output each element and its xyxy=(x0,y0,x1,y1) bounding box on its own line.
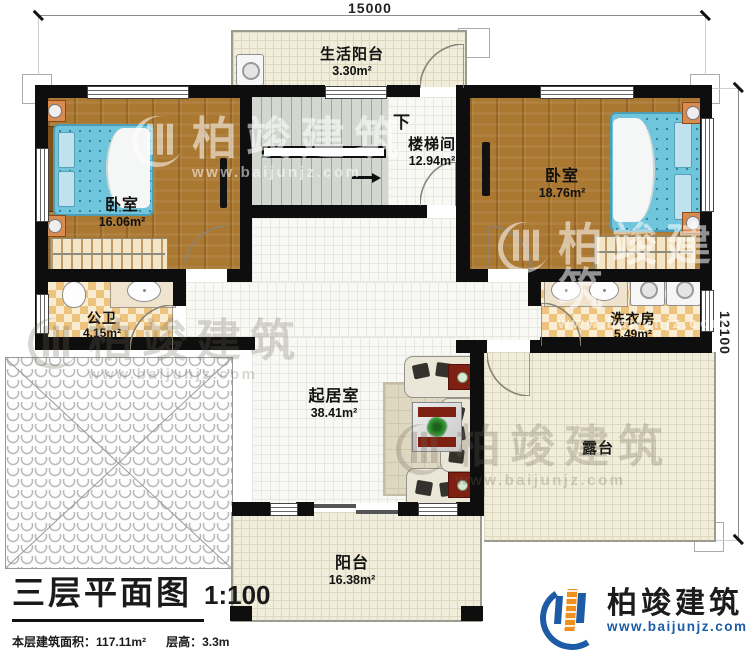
window xyxy=(540,86,634,99)
room-label-stairwell: 楼梯间 12.94m² xyxy=(408,137,456,168)
wall xyxy=(387,85,420,97)
window xyxy=(36,294,49,334)
wall xyxy=(528,269,541,306)
tv xyxy=(220,158,227,208)
hallway-floor xyxy=(252,218,456,284)
balcony-post xyxy=(461,606,483,621)
wall xyxy=(232,502,270,516)
plan-scale: 1:100 xyxy=(204,580,271,610)
company-logo-text: 柏竣建筑 www.baijunjz.com xyxy=(607,588,748,635)
company-logo-icon xyxy=(538,578,602,644)
floor-height-label: 层高： xyxy=(166,635,202,649)
window xyxy=(325,86,387,99)
room-label-public-bath: 公卫 4.15m² xyxy=(83,311,121,340)
room-label-life-balcony: 生活阳台 3.30m² xyxy=(320,47,384,78)
wall xyxy=(240,205,427,218)
room-label-bedroom-left: 卧室 16.06m² xyxy=(99,197,146,229)
company-name: 柏竣建筑 xyxy=(607,588,748,620)
wall xyxy=(173,269,186,306)
floor-plan-canvas: 15000 12100 xyxy=(0,0,750,658)
plant xyxy=(425,415,449,439)
door-laundry xyxy=(541,303,581,346)
window xyxy=(701,290,714,332)
floor-area-value: 117.11m² xyxy=(96,635,146,649)
wall xyxy=(35,269,185,282)
door-bedroom-left xyxy=(185,226,228,269)
parapet xyxy=(484,540,716,542)
window xyxy=(701,118,714,212)
sliding-door xyxy=(314,504,356,508)
room-label-bedroom-right: 卧室 18.76m² xyxy=(539,168,586,200)
company-website: www.baijunjz.com xyxy=(607,619,748,634)
wall xyxy=(456,269,488,282)
plan-stats: 本层建筑面积：117.11m²层高：3.3m xyxy=(12,633,271,650)
dimension-top-value: 15000 xyxy=(348,0,392,16)
wall xyxy=(470,340,484,510)
wall xyxy=(240,85,325,97)
door-stairwell xyxy=(420,162,456,206)
wall xyxy=(530,269,712,282)
wardrobe xyxy=(50,238,168,270)
window xyxy=(36,148,49,222)
room-label-laundry: 洗衣房 5.49m² xyxy=(611,312,656,341)
window xyxy=(418,503,458,516)
water-heater xyxy=(236,54,264,86)
corridor-floor xyxy=(186,282,541,340)
lower-roof xyxy=(5,357,233,569)
parapet xyxy=(231,30,467,32)
room-label-living: 起居室 38.41m² xyxy=(308,388,359,420)
plan-title: 三层平面图 xyxy=(12,574,192,611)
roof-ridge-line xyxy=(6,357,233,568)
window xyxy=(87,86,189,99)
floor-height-value: 3.3m xyxy=(202,635,229,649)
sliding-door xyxy=(356,510,398,514)
wall xyxy=(456,85,470,282)
coffee-table xyxy=(412,402,462,452)
parapet xyxy=(465,30,467,87)
wall xyxy=(398,502,418,516)
wardrobe xyxy=(594,236,696,270)
parapet xyxy=(231,30,233,87)
tv xyxy=(482,142,490,196)
door-terrace xyxy=(487,353,530,396)
window xyxy=(270,503,298,516)
wall xyxy=(240,85,252,282)
stair-down-arrow xyxy=(352,176,374,179)
parapet xyxy=(714,352,716,542)
dimension-right-value: 12100 xyxy=(717,311,733,355)
stair-direction-label: 下 xyxy=(393,108,410,133)
wall xyxy=(456,502,484,516)
door-bedroom-right xyxy=(488,226,531,269)
door-public-bath xyxy=(130,305,173,350)
room-label-balcony: 阳台 16.38m² xyxy=(329,555,376,587)
wall xyxy=(227,269,252,282)
stair-handrail xyxy=(262,146,386,158)
floor-area-label: 本层建筑面积： xyxy=(12,635,96,649)
stair-down-arrow-head xyxy=(372,173,381,183)
title-underline xyxy=(12,619,204,622)
door-life-balcony xyxy=(420,44,464,88)
company-logo: 柏竣建筑 www.baijunjz.com xyxy=(538,578,748,644)
room-label-terrace: 露台 xyxy=(582,441,614,458)
title-block: 三层平面图1:100 本层建筑面积：117.11m²层高：3.3m xyxy=(12,566,271,650)
wall xyxy=(296,502,314,516)
